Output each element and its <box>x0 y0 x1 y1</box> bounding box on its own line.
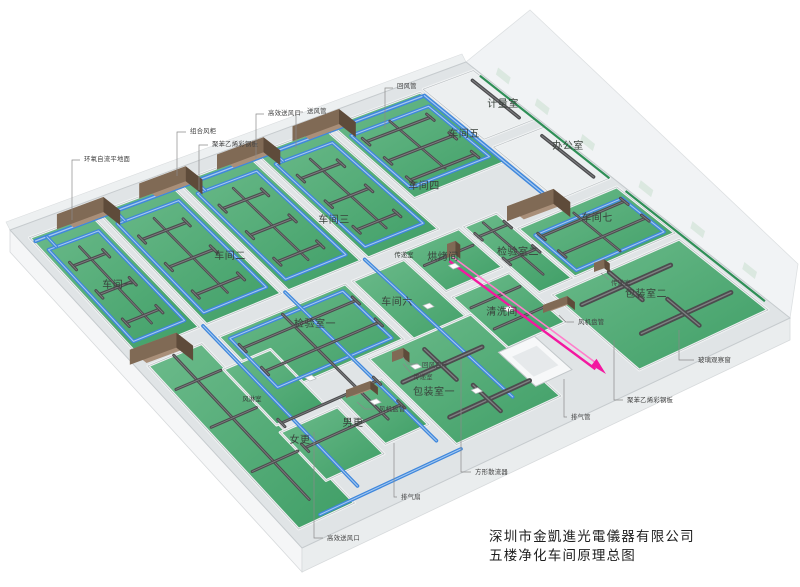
callout-label: 传递室 <box>611 278 631 287</box>
callout-label: 风机盘管 <box>379 404 405 413</box>
callout-label: 风机盘管 <box>578 317 604 326</box>
callout-label: 聚苯乙烯彩钢板 <box>212 139 259 148</box>
callout-label: 组合风柜 <box>190 126 217 135</box>
room-label: 车间一 <box>102 278 134 291</box>
room-label: 清洗间 <box>486 305 518 318</box>
room-label: 烘烤间 <box>427 250 459 263</box>
room-label: 车间三 <box>318 213 350 226</box>
room-label: 车间七 <box>581 211 613 224</box>
callout-label: 高效送风口 <box>327 533 360 542</box>
callout-label: 玻璃观察窗 <box>698 355 731 364</box>
callout-label: 传递室 <box>413 372 433 381</box>
room-label: 车间四 <box>408 179 440 192</box>
room-label: 风淋室 <box>242 394 262 403</box>
room-label: 包装室一 <box>413 385 455 398</box>
cleanroom-isometric-diagram: 环氧自流平地面组合风柜聚苯乙烯彩钢板高效送风口送风管回风管回风百叶传递室风机盘管… <box>0 0 800 587</box>
callout-label: 回风百叶 <box>422 360 449 369</box>
callout-label: 送风管 <box>307 106 327 115</box>
room-label: 检验室一 <box>294 317 336 330</box>
room-label: 车间五 <box>448 127 480 140</box>
room-label: 传递室 <box>394 250 414 259</box>
room-label: 车间六 <box>381 295 413 308</box>
callout-label: 回风管 <box>397 81 417 90</box>
callout-label: 聚苯乙烯彩钢板 <box>627 395 674 404</box>
company-title: 深圳市金凱進光電儀器有限公司 <box>489 528 695 544</box>
drawing-title: 五楼净化车间原理总图 <box>489 547 636 563</box>
room-label: 女更 <box>290 433 311 446</box>
callout-label: 方形散流器 <box>475 467 508 476</box>
callout-label: 排气扇 <box>401 492 421 501</box>
room-label: 男更 <box>343 417 364 429</box>
room-label: 办公室 <box>552 139 584 152</box>
isometric-scene-canvas: 环氧自流平地面组合风柜聚苯乙烯彩钢板高效送风口送风管回风管回风百叶传递室风机盘管… <box>0 0 800 587</box>
room-label: 包装室二 <box>625 287 667 300</box>
callout-label: 排气管 <box>571 412 591 421</box>
callout-label: 环氧自流平地面 <box>84 154 131 163</box>
room-label: 检验室二 <box>497 245 539 258</box>
room-label: 计量室 <box>487 97 519 110</box>
room-label: 车间二 <box>214 249 246 262</box>
